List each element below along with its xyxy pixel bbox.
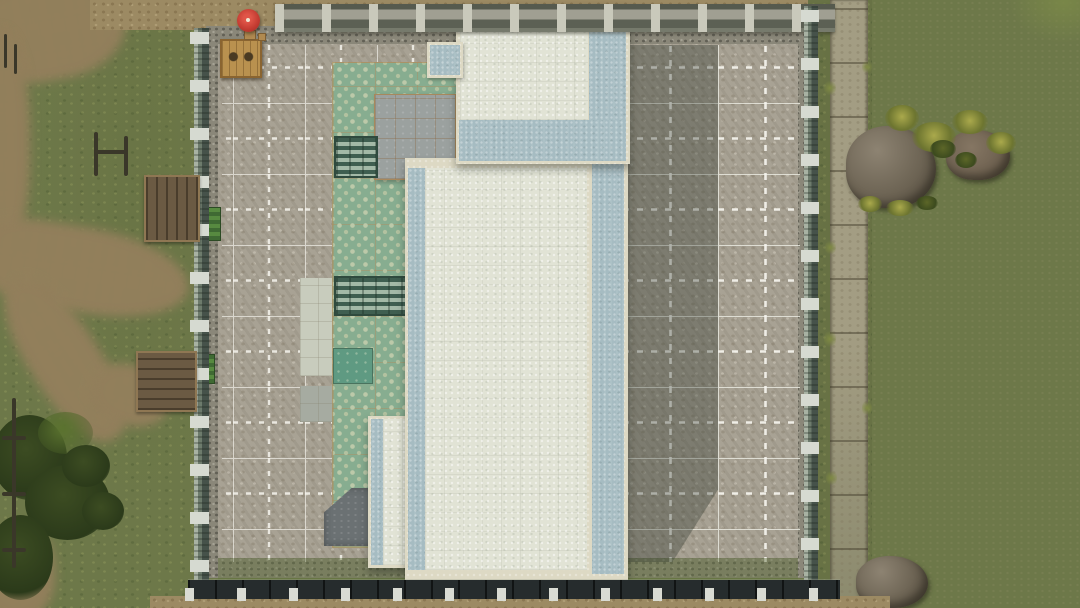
concrete-pad xyxy=(300,278,332,376)
north-balustrade[interactable] xyxy=(275,4,835,32)
wooden-pole-fence xyxy=(94,150,128,154)
roof-blue-band xyxy=(430,45,460,75)
grass-tuft xyxy=(916,196,938,210)
east-fence-posts xyxy=(801,10,819,586)
wooden-pole-fence xyxy=(124,136,128,176)
main-building[interactable] xyxy=(405,158,628,580)
wooden-deck[interactable] xyxy=(136,351,197,412)
wooden-pole-fence xyxy=(2,436,26,440)
striped-mat[interactable] xyxy=(334,276,412,316)
grass-tuft xyxy=(955,152,977,168)
grass-tuft xyxy=(952,110,988,134)
moss-tuft xyxy=(825,240,836,255)
wooden-pole-fence xyxy=(2,548,26,552)
water xyxy=(864,0,1080,608)
red-parasol[interactable] xyxy=(237,9,260,32)
wooden-pole-fence xyxy=(2,492,26,496)
grass-tuft xyxy=(930,140,956,158)
south-wall-posts xyxy=(185,588,843,601)
wooden-pole-fence xyxy=(4,34,7,68)
grass-corner-patch xyxy=(1008,0,1080,44)
game-viewport[interactable] xyxy=(0,0,1080,608)
roof-blue-band xyxy=(371,419,383,565)
wooden-deck[interactable] xyxy=(144,175,200,242)
bush xyxy=(82,492,124,530)
wooden-pole-fence xyxy=(12,398,16,568)
roof-pale-panel xyxy=(425,168,587,570)
building-shadow xyxy=(623,45,718,562)
wooden-pole-fence xyxy=(94,132,98,176)
moss-tuft xyxy=(862,60,872,74)
moss-tuft xyxy=(862,400,872,416)
roof-blue-band xyxy=(592,162,624,574)
vendor-crate[interactable] xyxy=(220,39,262,78)
striped-mat[interactable] xyxy=(334,136,378,178)
moss-tuft xyxy=(826,470,837,486)
grass-tuft xyxy=(858,196,882,212)
stool xyxy=(258,33,266,41)
bush xyxy=(62,445,110,487)
wooden-pole-fence xyxy=(14,44,17,74)
moss-tuft xyxy=(824,330,836,348)
stone-walkway xyxy=(830,0,868,604)
blue-annex[interactable] xyxy=(427,42,463,78)
grass-tuft xyxy=(886,200,914,216)
west-fence-posts xyxy=(190,32,209,584)
roof-blue-band xyxy=(408,168,425,570)
grass-tuft xyxy=(885,105,919,131)
teal-floor-pad xyxy=(333,348,373,384)
grass-tuft xyxy=(986,132,1016,154)
moss-tuft xyxy=(824,80,836,96)
roof-blue-band xyxy=(459,120,626,161)
